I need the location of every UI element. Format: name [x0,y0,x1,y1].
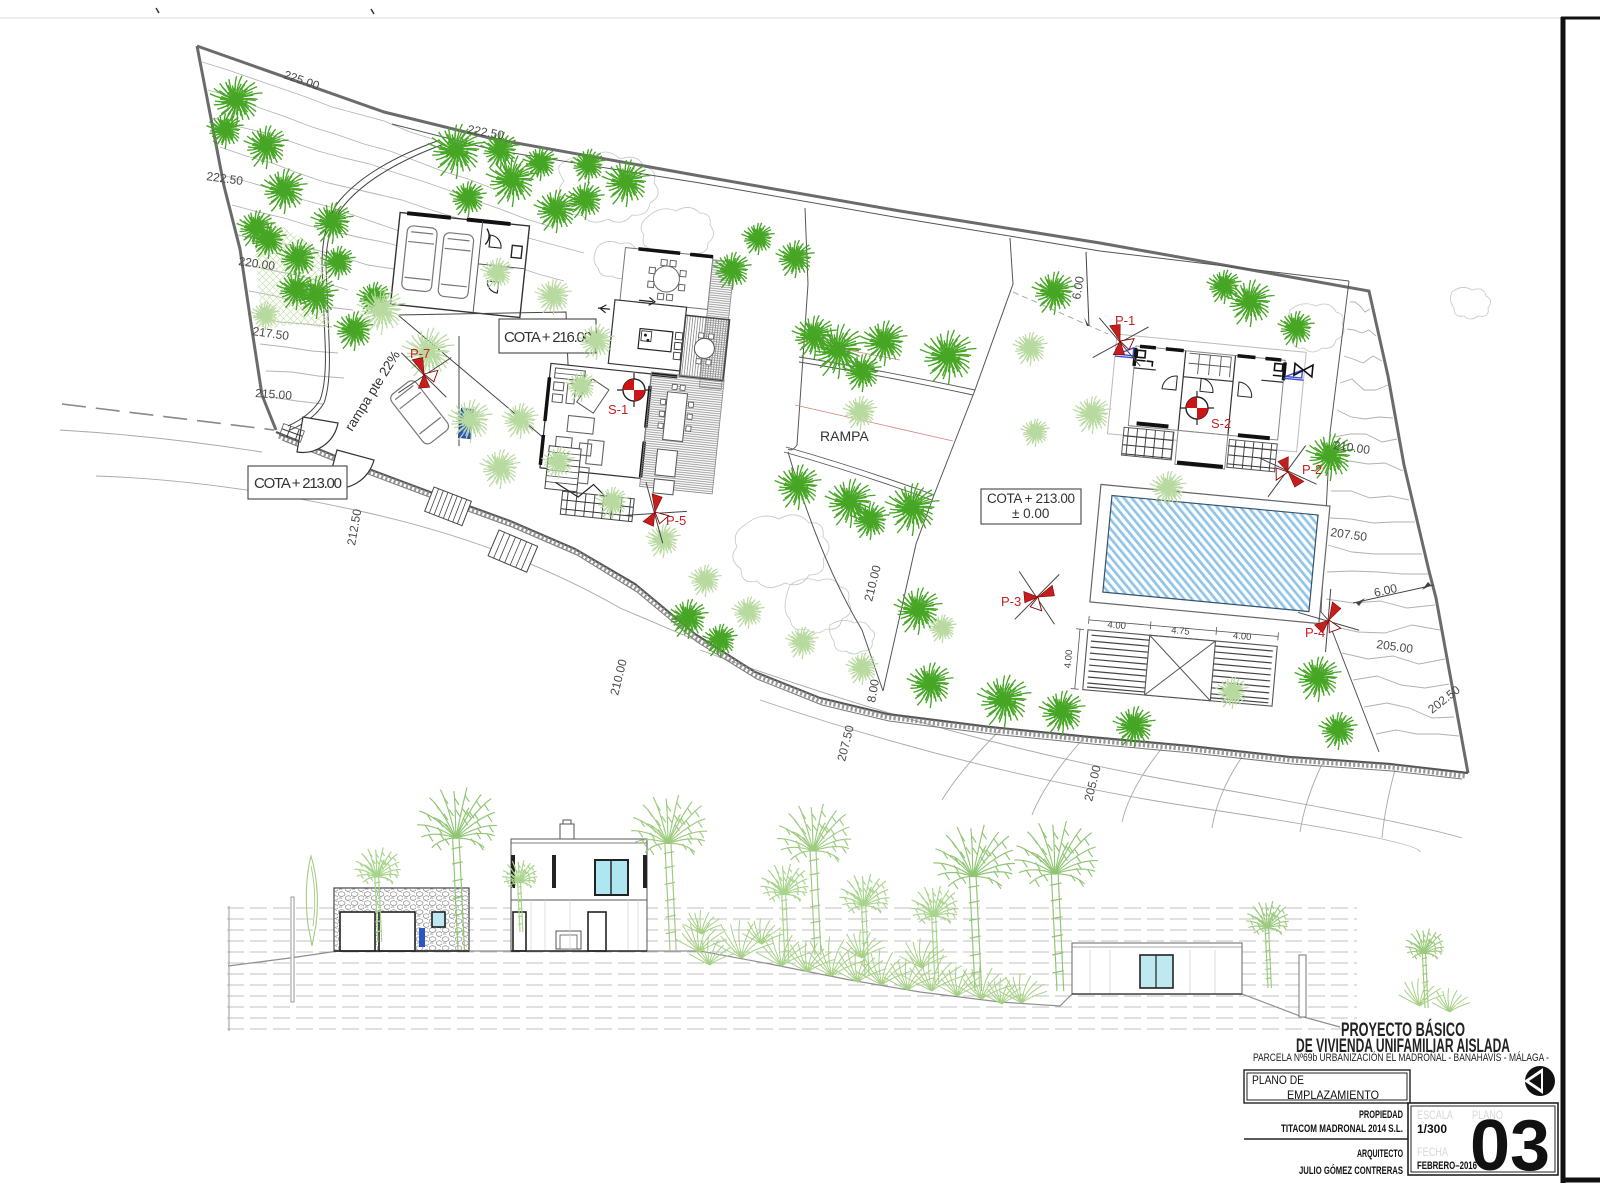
svg-text:4.00: 4.00 [1107,620,1126,633]
svg-text:PLANO DE: PLANO DE [1252,1073,1304,1087]
svg-text:P-1: P-1 [1115,313,1135,328]
svg-text:TITACOM MADRONAL 2014 S.L.: TITACOM MADRONAL 2014 S.L. [1281,1123,1403,1135]
svg-text:215.00: 215.00 [255,386,293,403]
svg-text:4.00: 4.00 [1233,631,1252,644]
svg-text:COTA + 213.00: COTA + 213.00 [254,475,342,492]
svg-text:RAMPA: RAMPA [820,428,869,444]
svg-text:03: 03 [1470,1106,1550,1186]
svg-text:ESCALA: ESCALA [1417,1108,1453,1122]
svg-text:P-3: P-3 [1001,594,1021,609]
svg-text:COTA + 213.00: COTA + 213.00 [987,491,1075,506]
svg-text:PROPIEDAD: PROPIEDAD [1359,1109,1403,1121]
svg-text:FECHA: FECHA [1417,1145,1448,1159]
svg-text:4.00: 4.00 [1063,649,1076,668]
svg-text:S-2: S-2 [1211,416,1231,431]
svg-text:ARQUITECTO: ARQUITECTO [1357,1148,1403,1160]
svg-text:P-7: P-7 [410,346,430,361]
svg-text:P-2: P-2 [1302,462,1322,477]
svg-text:± 0.00: ± 0.00 [1012,506,1049,521]
svg-text:P-4: P-4 [1305,625,1325,640]
svg-text:S-1: S-1 [608,402,628,417]
svg-text:FEBRERO–2016: FEBRERO–2016 [1417,1160,1477,1172]
svg-text:P-5: P-5 [666,513,686,528]
svg-text:JULIO GÓMEZ CONTRERAS: JULIO GÓMEZ CONTRERAS [1299,1164,1403,1177]
svg-text:EMPLAZAMIENTO: EMPLAZAMIENTO [1287,1088,1379,1102]
svg-text:1/300: 1/300 [1417,1122,1447,1136]
svg-text:PARCELA Nº69b URBANIZACIÓN EL: PARCELA Nº69b URBANIZACIÓN EL MADROÑAL -… [1253,1051,1549,1064]
svg-text:4.75: 4.75 [1171,625,1190,638]
